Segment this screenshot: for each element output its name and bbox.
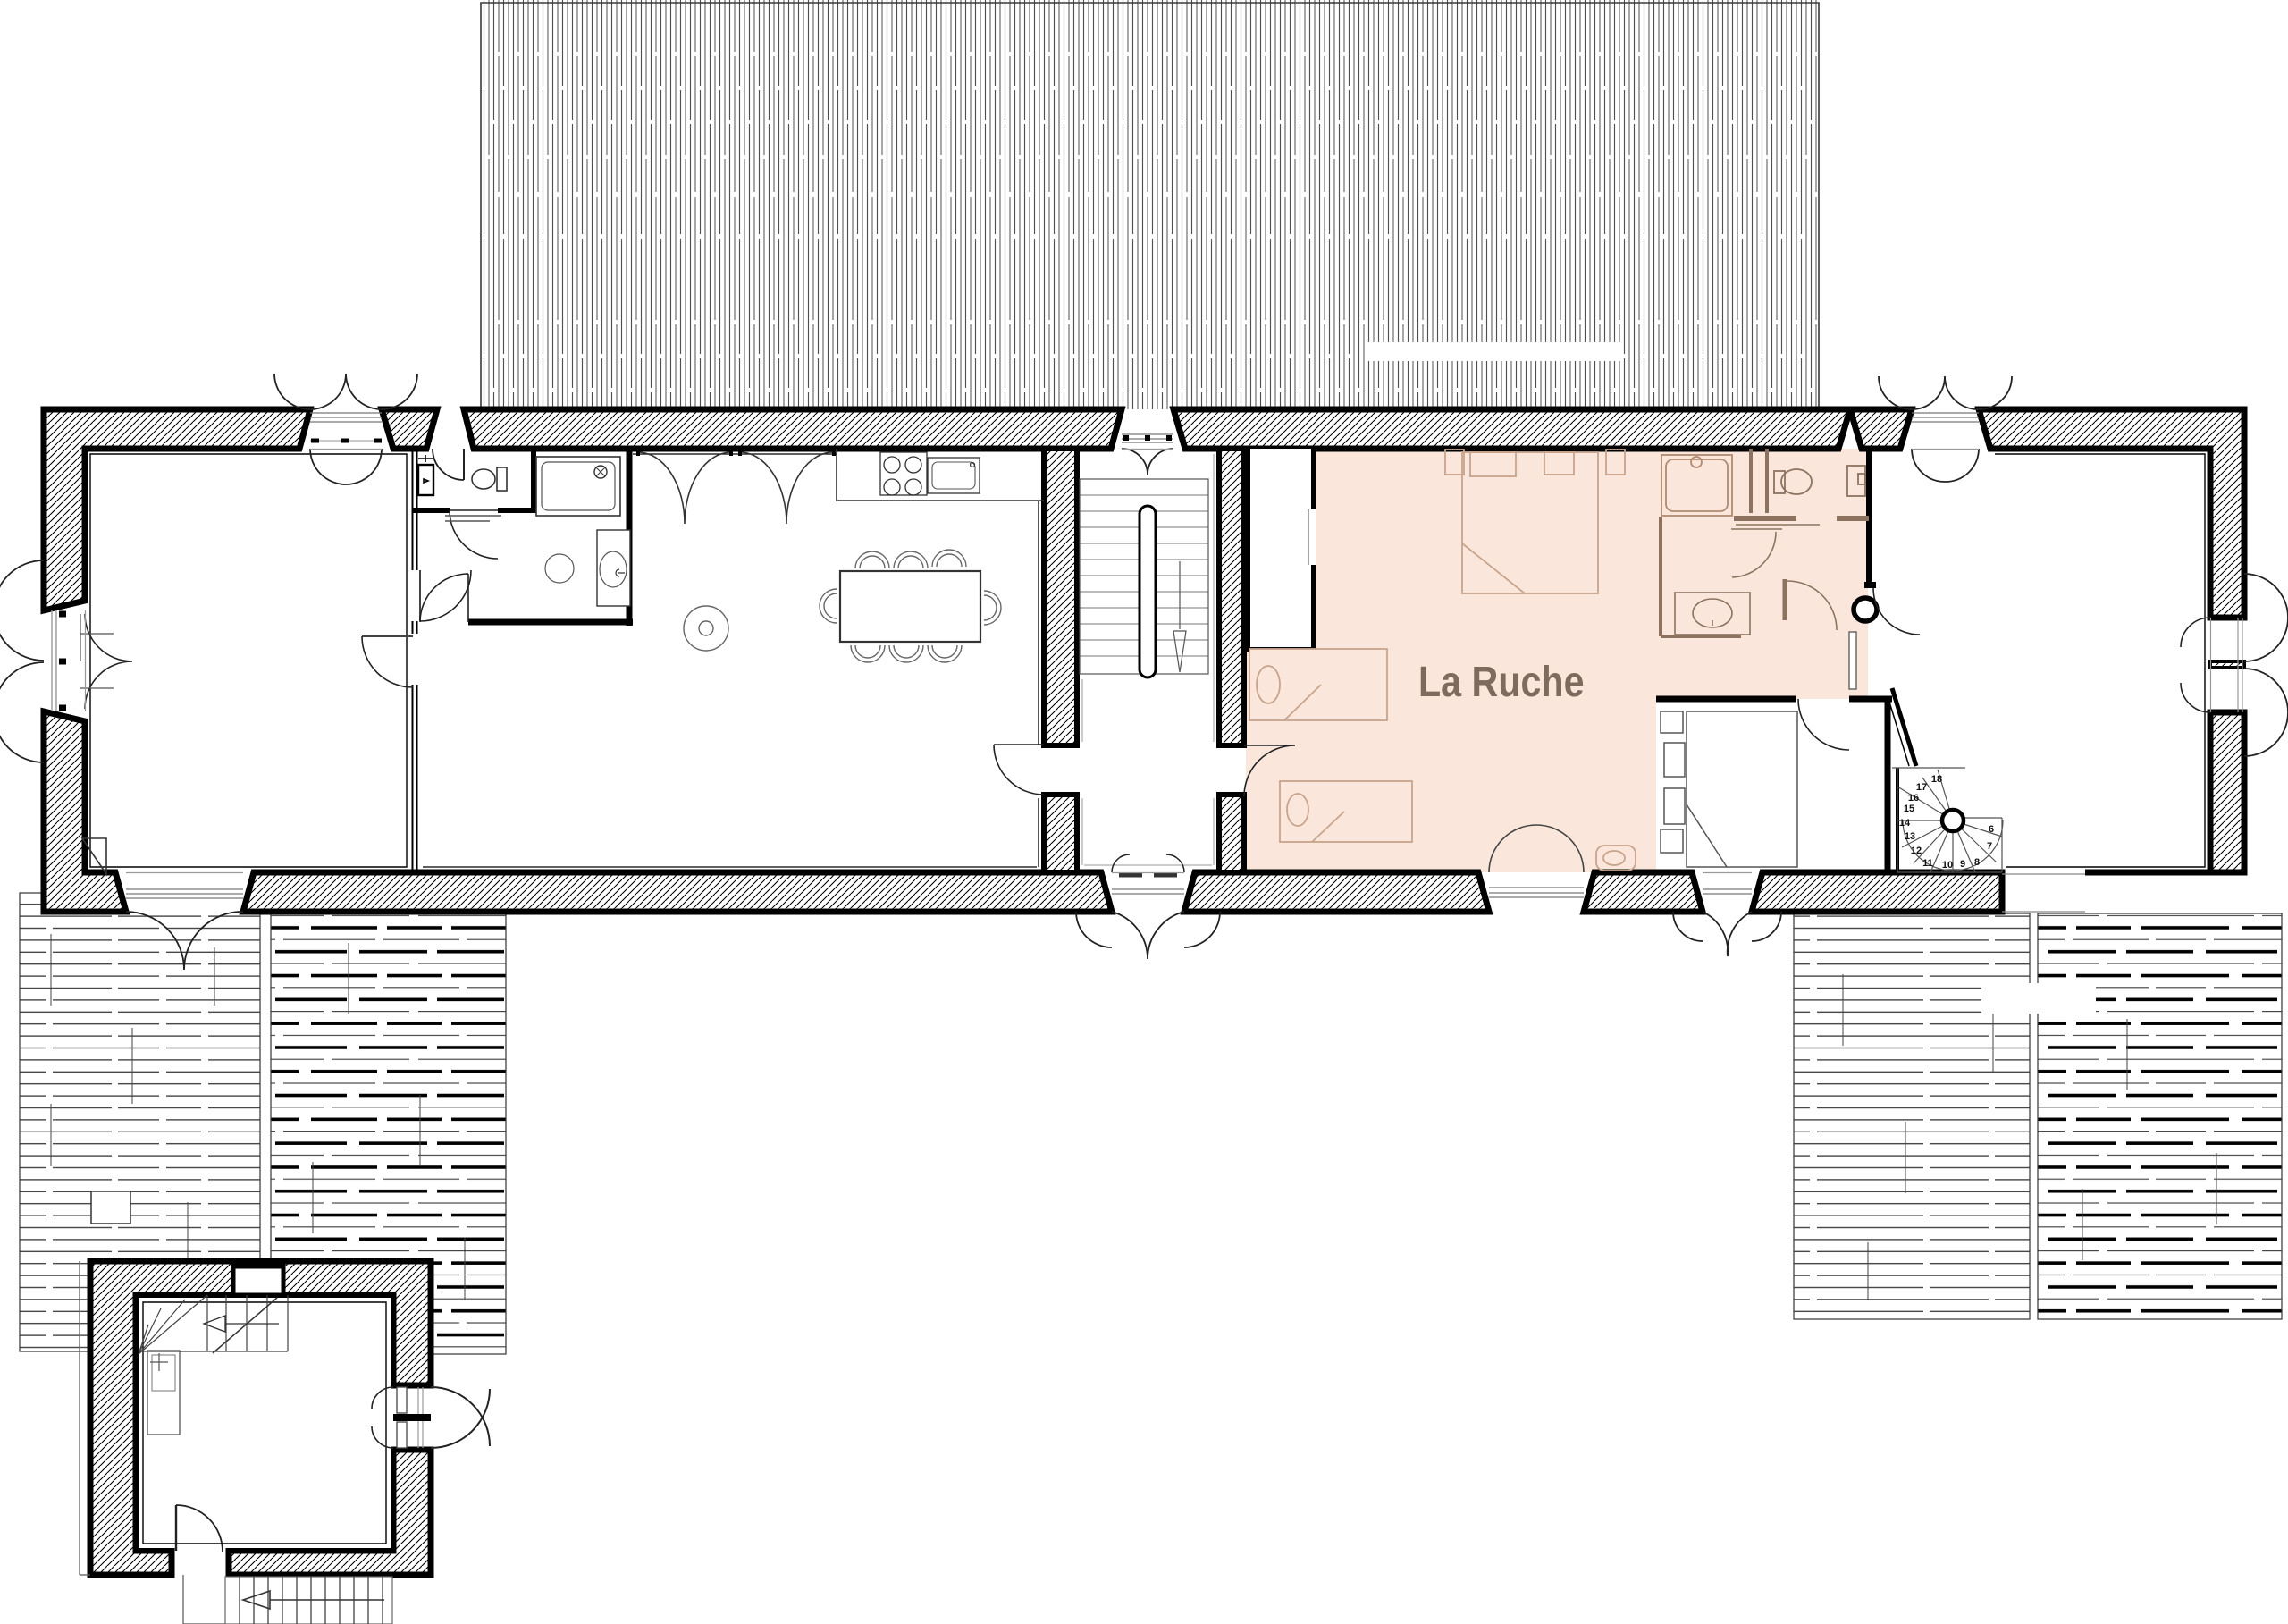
svg-text:10: 10 [1942, 860, 1953, 871]
svg-text:18: 18 [1931, 774, 1942, 785]
svg-text:8: 8 [1974, 857, 1980, 868]
svg-text:13: 13 [1905, 831, 1915, 842]
svg-text:17: 17 [1916, 782, 1927, 793]
svg-text:6: 6 [1989, 824, 1994, 835]
svg-text:7: 7 [1987, 841, 1992, 852]
svg-text:9: 9 [1960, 859, 1965, 870]
svg-text:La Ruche: La Ruche [1418, 657, 1585, 706]
svg-text:15: 15 [1904, 804, 1914, 814]
svg-text:16: 16 [1908, 793, 1919, 804]
svg-text:12: 12 [1911, 846, 1922, 856]
svg-text:11: 11 [1922, 858, 1933, 869]
svg-text:14: 14 [1899, 818, 1911, 829]
